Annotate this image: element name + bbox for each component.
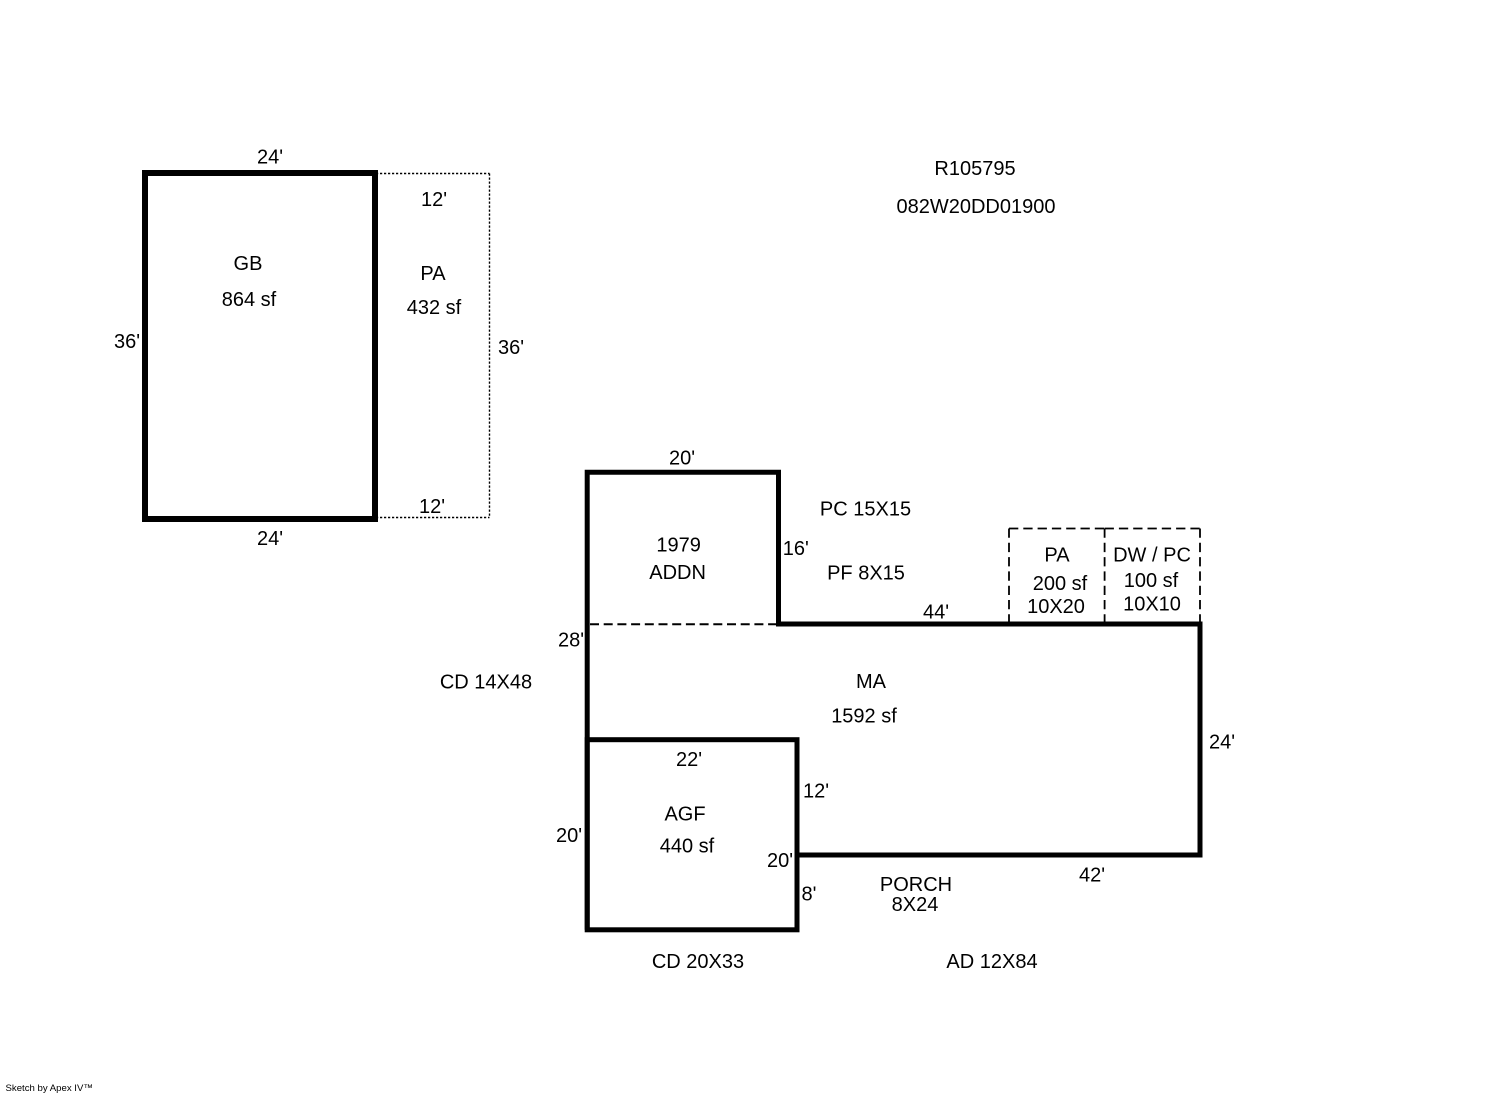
svg-text:44': 44': [923, 602, 949, 624]
svg-text:12': 12': [421, 189, 447, 211]
svg-text:20': 20': [767, 850, 793, 872]
svg-text:AGF: AGF: [664, 804, 705, 826]
svg-text:PC 15X15: PC 15X15: [820, 499, 911, 521]
svg-text:440 sf: 440 sf: [660, 836, 715, 858]
svg-text:CD 20X33: CD 20X33: [652, 951, 744, 973]
svg-text:ADDN: ADDN: [649, 562, 706, 584]
svg-text:36': 36': [498, 337, 524, 359]
svg-text:10X20: 10X20: [1027, 596, 1085, 618]
svg-text:CD 14X48: CD 14X48: [440, 672, 532, 694]
svg-text:24': 24': [257, 528, 283, 550]
svg-text:28': 28': [558, 630, 584, 652]
svg-text:24': 24': [257, 147, 283, 169]
svg-text:12': 12': [419, 496, 445, 518]
svg-text:MA: MA: [856, 671, 887, 693]
svg-text:16': 16': [783, 538, 809, 560]
svg-text:36': 36': [114, 331, 140, 353]
svg-text:10X10: 10X10: [1123, 594, 1181, 616]
svg-text:082W20DD01900: 082W20DD01900: [897, 196, 1056, 218]
svg-text:864 sf: 864 sf: [222, 289, 277, 311]
svg-text:PA: PA: [1044, 545, 1070, 567]
svg-text:12': 12': [803, 781, 829, 803]
svg-text:42': 42': [1079, 865, 1105, 887]
svg-text:20': 20': [556, 825, 582, 847]
svg-text:432 sf: 432 sf: [407, 297, 462, 319]
svg-text:PORCH: PORCH: [880, 874, 952, 896]
svg-text:DW / PC: DW / PC: [1113, 545, 1191, 567]
svg-text:200 sf: 200 sf: [1033, 573, 1088, 595]
svg-text:1979: 1979: [656, 535, 701, 557]
svg-text:Sketch by Apex IV™: Sketch by Apex IV™: [6, 1083, 93, 1094]
svg-text:R105795: R105795: [934, 158, 1015, 180]
svg-text:8X24: 8X24: [892, 894, 939, 916]
svg-text:PA: PA: [420, 263, 446, 285]
svg-text:22': 22': [676, 749, 702, 771]
svg-text:AD 12X84: AD 12X84: [946, 951, 1037, 973]
svg-text:1592 sf: 1592 sf: [831, 706, 897, 728]
svg-text:8': 8': [802, 884, 817, 906]
svg-text:24': 24': [1209, 732, 1235, 754]
svg-text:20': 20': [669, 448, 695, 470]
svg-text:GB: GB: [234, 253, 263, 275]
svg-text:PF 8X15: PF 8X15: [827, 563, 905, 585]
svg-text:100 sf: 100 sf: [1124, 570, 1179, 592]
